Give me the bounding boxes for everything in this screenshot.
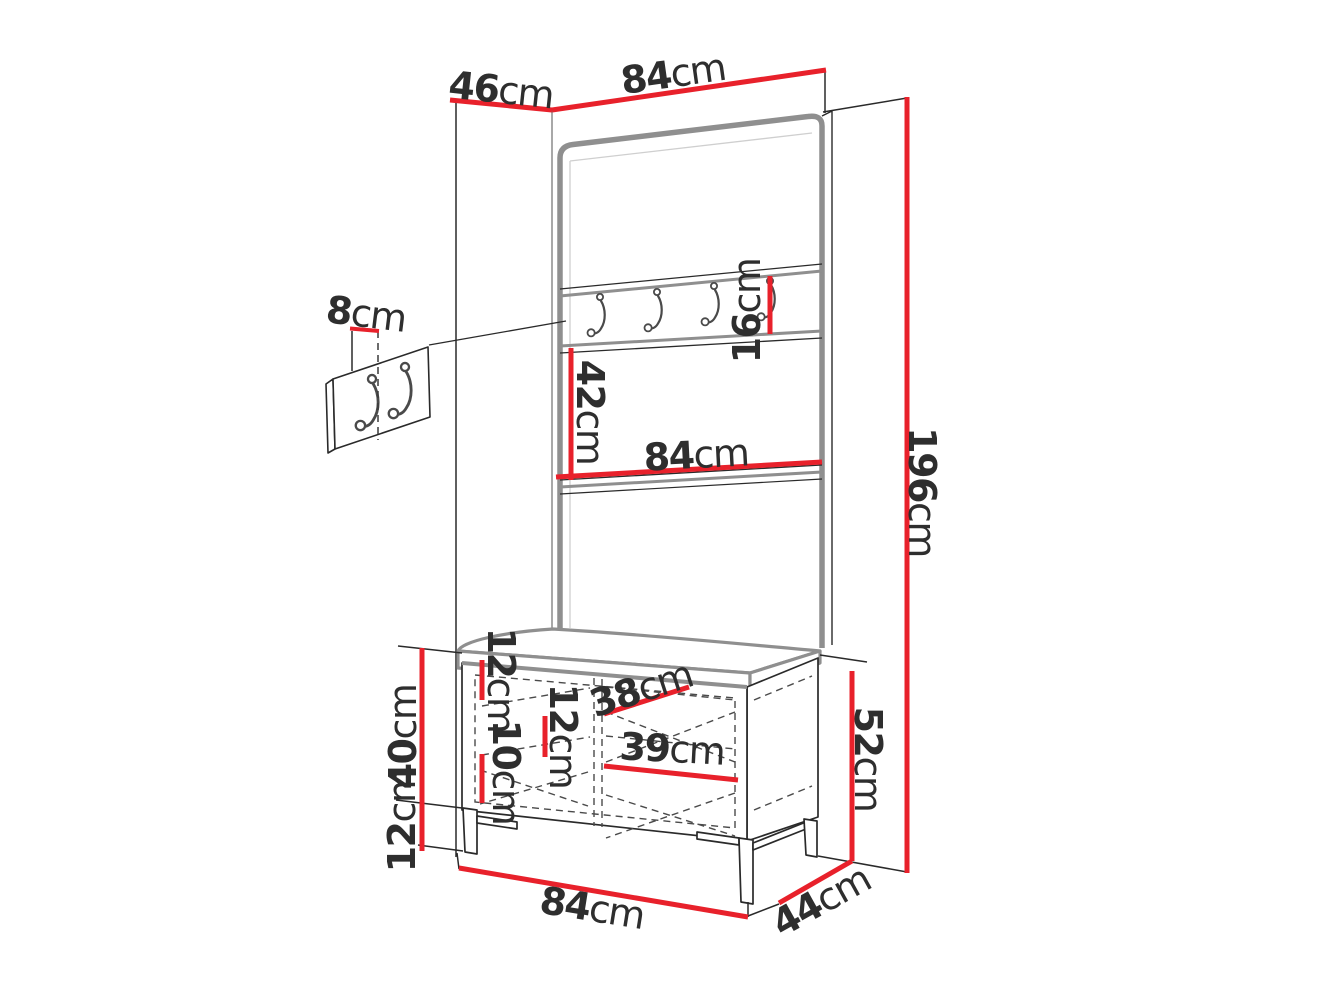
dimension-label-12cm-mid: 12cm — [544, 684, 582, 789]
dimension-label-height-196cm: 196cm — [903, 427, 941, 557]
dimension-label-12cm-top: 12cm — [482, 628, 520, 733]
dimension-label-39cm: 39cm — [619, 727, 726, 770]
hook-panel-detail — [326, 321, 566, 453]
dimension-label-mirror-42cm: 42cm — [571, 360, 609, 465]
dimension-label-width-84cm-mid: 84cm — [643, 433, 750, 476]
furniture-dimension-diagram: 46cm 84cm 8cm 16cm 42cm 84cm 196cm 12cm … — [0, 0, 1320, 990]
dimension-label-hook-offset-8cm: 8cm — [324, 290, 408, 337]
leader-line — [429, 321, 566, 345]
diagram-linework — [0, 0, 1320, 990]
dimension-label-10cm: 10cm — [487, 720, 525, 825]
dimension-label-bench-height-52cm: 52cm — [849, 707, 887, 812]
dimension-label-legs-12cm: 12cm — [383, 768, 421, 873]
dimension-label-depth-46cm: 46cm — [447, 66, 555, 115]
dimension-label-rail-16cm: 16cm — [728, 259, 766, 364]
